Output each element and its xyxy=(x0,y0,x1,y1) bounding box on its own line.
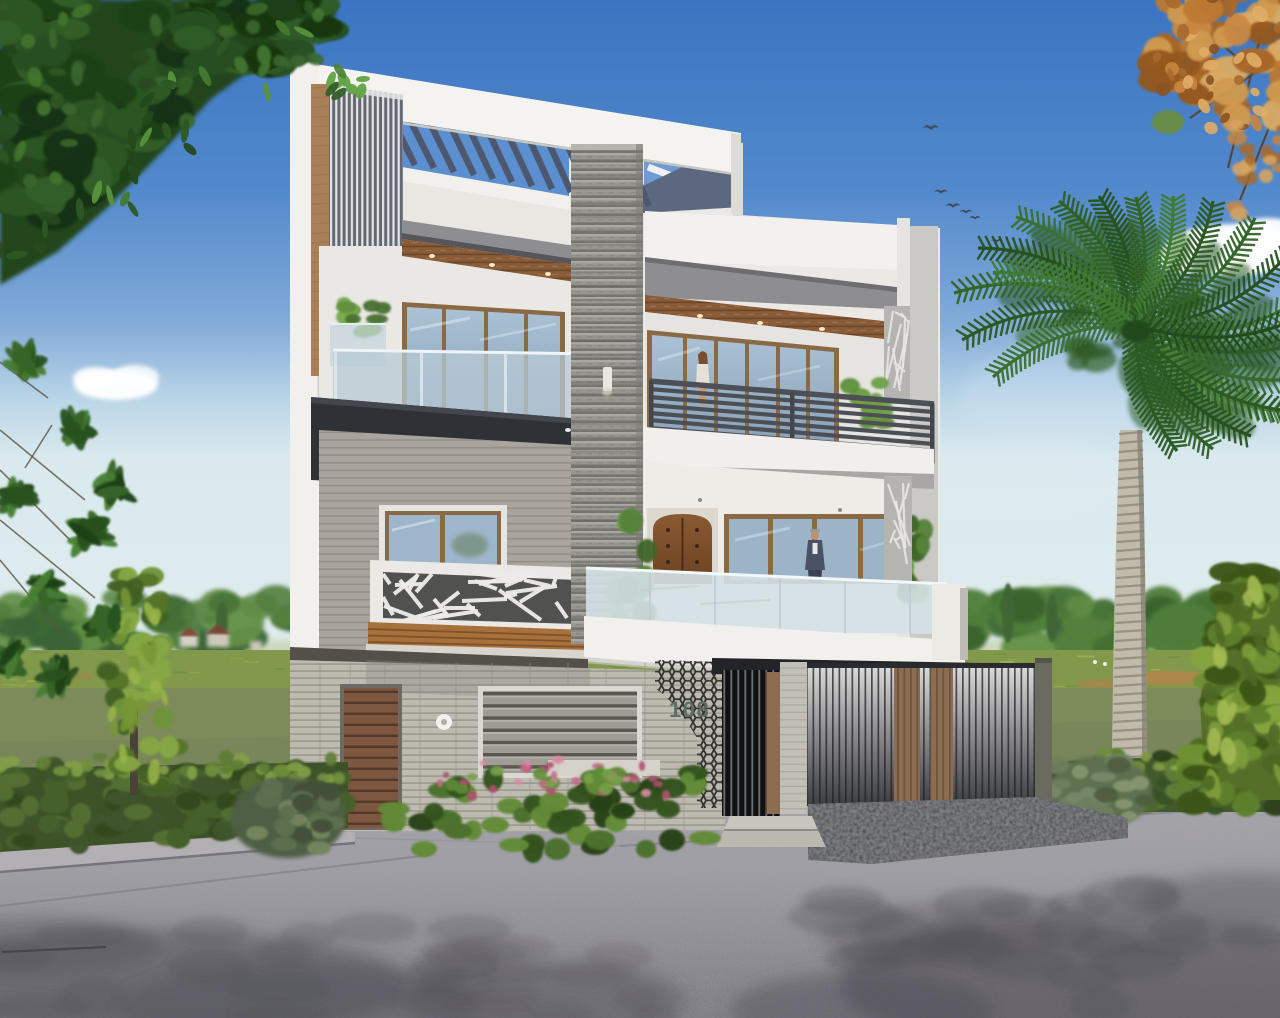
svg-text:108: 108 xyxy=(669,697,710,722)
